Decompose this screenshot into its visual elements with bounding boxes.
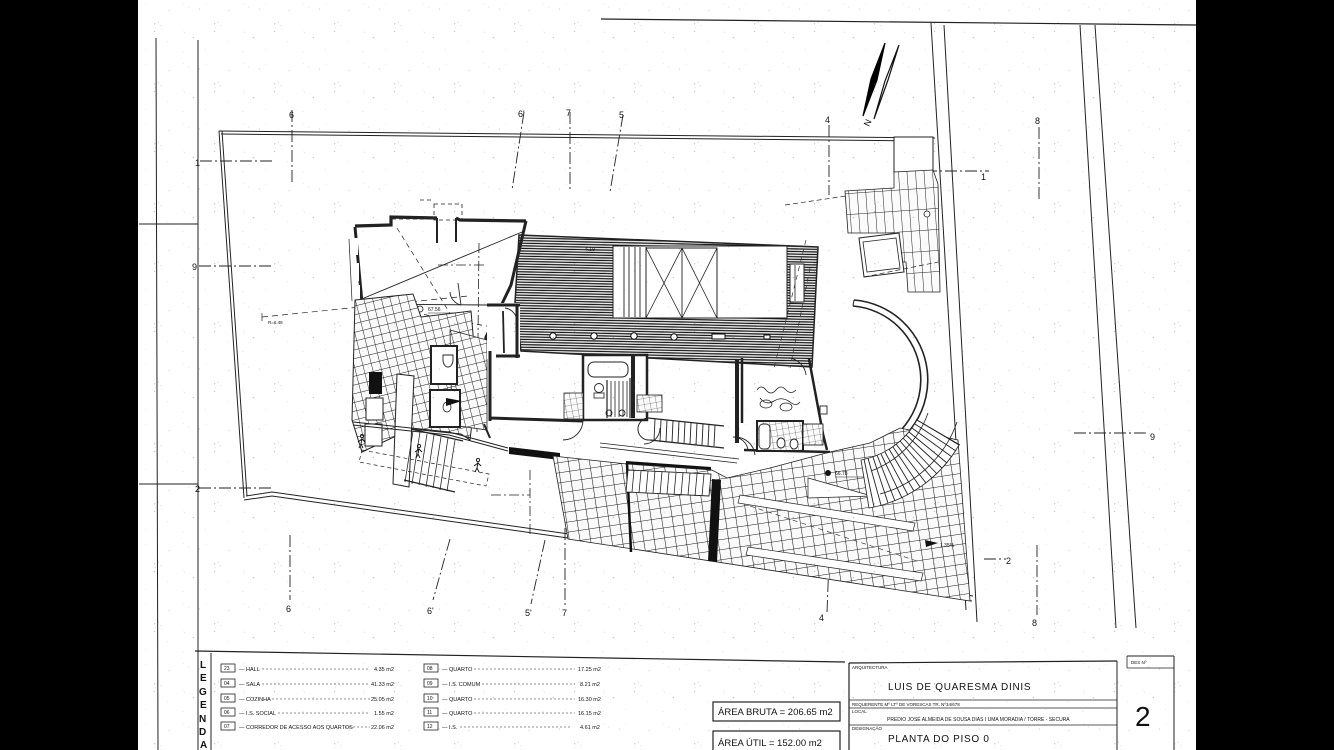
svg-text:23: 23	[224, 666, 230, 672]
svg-text:— CORREDOR DE ACESSO AOS QUART: — CORREDOR DE ACESSO AOS QUARTOS	[239, 725, 353, 731]
svg-text:07: 07	[224, 724, 230, 730]
svg-text:L: L	[200, 660, 206, 671]
svg-text:— I.S.: — I.S.	[442, 725, 458, 731]
svg-text:— QUARTO: — QUARTO	[442, 711, 473, 717]
svg-text:ARQUITECTURA: ARQUITECTURA	[852, 665, 888, 670]
svg-text:17.25 m2: 17.25 m2	[578, 667, 601, 673]
svg-text:04: 04	[224, 681, 230, 687]
svg-text:41.33 m2: 41.33 m2	[371, 682, 394, 688]
svg-text:A: A	[200, 740, 207, 750]
svg-text:ÁREA BRUTA = 206.65 m2: ÁREA BRUTA = 206.65 m2	[718, 707, 833, 718]
svg-text:11: 11	[427, 710, 432, 716]
svg-text:16.30 m2: 16.30 m2	[578, 697, 601, 703]
svg-text:DESIGNAÇÃO: DESIGNAÇÃO	[852, 725, 883, 731]
svg-text:— HALL: — HALL	[239, 667, 260, 673]
svg-text:22.06 m2: 22.06 m2	[371, 725, 394, 731]
svg-text:REQUERENTE Mº LTº DE VORESC: REQUERENTE Mº LTº DE VORESCAS TR. Nº34/6…	[852, 702, 960, 707]
svg-text:2: 2	[1135, 701, 1151, 732]
svg-text:8.21 m2: 8.21 m2	[580, 682, 600, 688]
svg-text:LOCAL: LOCAL	[852, 709, 867, 714]
svg-text:— COZINHA: — COZINHA	[239, 697, 271, 703]
svg-text:PREDIO JOSÉ ALMEIDA DE SOUSA D: PREDIO JOSÉ ALMEIDA DE SOUSA DIAS I UMA …	[887, 716, 1070, 723]
svg-text:N: N	[199, 714, 206, 725]
svg-text:05: 05	[224, 696, 230, 702]
svg-text:DES Nº: DES Nº	[1131, 660, 1147, 665]
svg-text:— SALA: — SALA	[239, 682, 260, 688]
svg-text:10: 10	[427, 696, 433, 702]
svg-text:D: D	[199, 727, 206, 738]
svg-text:— QUARTO: — QUARTO	[442, 697, 473, 703]
svg-text:08: 08	[427, 666, 433, 672]
svg-text:4.61 m2: 4.61 m2	[580, 725, 600, 731]
svg-text:06: 06	[224, 710, 230, 716]
svg-text:— I.S. SOCIAL: — I.S. SOCIAL	[239, 711, 276, 717]
svg-text:— QUARTO: — QUARTO	[442, 667, 473, 673]
svg-text:1.55 m2: 1.55 m2	[374, 711, 394, 717]
svg-text:25.05 m2: 25.05 m2	[371, 697, 394, 703]
svg-text:E: E	[200, 700, 207, 711]
svg-text:PLANTA DO PISO 0: PLANTA DO PISO 0	[888, 734, 990, 745]
svg-text:16.15 m2: 16.15 m2	[578, 711, 601, 717]
svg-text:ÁREA ÚTIL = 152.00 m2: ÁREA ÚTIL = 152.00 m2	[718, 738, 822, 749]
svg-text:LUIS DE QUARESMA DINIS: LUIS DE QUARESMA DINIS	[888, 682, 1031, 693]
svg-text:— I.S. COMUM: — I.S. COMUM	[442, 682, 481, 688]
svg-text:G: G	[199, 687, 207, 698]
svg-text:09: 09	[427, 681, 433, 687]
svg-text:12: 12	[427, 724, 433, 730]
svg-text:E: E	[200, 673, 207, 684]
svg-text:4.35 m2: 4.35 m2	[374, 667, 394, 673]
